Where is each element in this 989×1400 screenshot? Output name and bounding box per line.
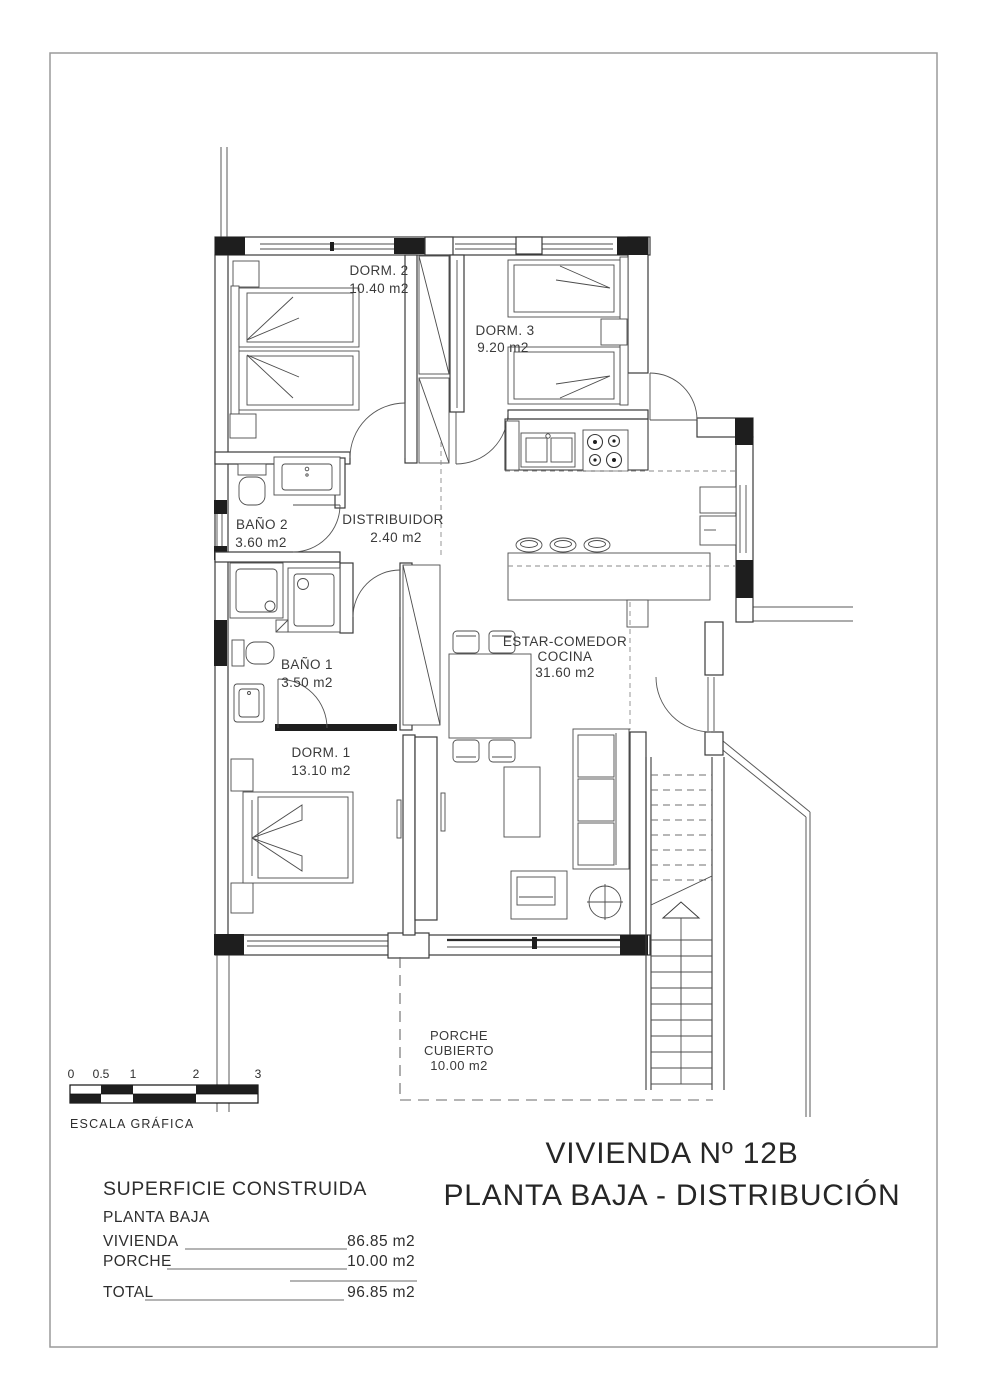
label-porche-line2: CUBIERTO <box>424 1043 494 1058</box>
label-dorm3-area: 9.20 m2 <box>477 340 529 355</box>
dining-set <box>449 631 531 762</box>
wardrobe-hall-lower <box>419 378 449 463</box>
bar-stools <box>516 538 610 552</box>
fridge-cabinets <box>700 487 736 545</box>
label-estar-line1: ESTAR-COMEDOR <box>503 634 627 649</box>
hob <box>583 430 628 471</box>
label-dorm1-area: 13.10 m2 <box>291 763 351 778</box>
dorm1-furniture <box>231 759 353 913</box>
armchair <box>511 871 567 919</box>
kitchen-sink <box>521 433 575 467</box>
door-dorm2 <box>350 403 405 458</box>
dorm2-furniture <box>230 261 359 438</box>
door-entry <box>656 677 714 732</box>
wardrobe-hall-upper <box>419 256 449 374</box>
summary-total-value: 96.85 m2 <box>347 1284 415 1301</box>
door-terrace <box>650 373 697 420</box>
door-dorm1 <box>353 570 400 617</box>
summary-row-vivienda-value: 86.85 m2 <box>347 1233 415 1250</box>
shower <box>230 563 283 618</box>
bathroom2-fixtures <box>238 457 340 505</box>
label-estar-line2: COCINA <box>538 649 593 664</box>
label-porche-area: 10.00 m2 <box>430 1058 487 1073</box>
door-dorm3 <box>456 412 508 464</box>
breakfast-bar <box>508 553 736 627</box>
scale-bar: 0 0.5 1 2 3 ESCALA GRÁFICA <box>68 1067 262 1131</box>
summary-total-label: TOTAL <box>103 1284 154 1301</box>
summary-row-porche-value: 10.00 m2 <box>347 1253 415 1270</box>
label-porche-line1: PORCHE <box>430 1028 488 1043</box>
toilet <box>232 640 274 666</box>
summary-heading: SUPERFICIE CONSTRUIDA <box>103 1178 367 1200</box>
summary-subheading: PLANTA BAJA <box>103 1209 210 1226</box>
label-bano1-area: 3.50 m2 <box>281 675 333 690</box>
scale-tick-3: 3 <box>255 1067 262 1081</box>
scale-tick-0: 0 <box>68 1067 75 1081</box>
label-dorm3-name: DORM. 3 <box>475 323 534 338</box>
wardrobe-dorm1 <box>403 565 440 725</box>
scale-tick-1: 1 <box>130 1067 137 1081</box>
drawing-sheet: DORM. 2 10.40 m2 DORM. 3 9.20 m2 BAÑO 2 … <box>0 0 989 1400</box>
label-estar-area: 31.60 m2 <box>535 665 595 680</box>
drain-box <box>276 620 288 632</box>
label-distribuidor-name: DISTRIBUIDOR <box>342 512 444 527</box>
living-furniture <box>504 729 629 920</box>
sink-vanity <box>274 457 340 495</box>
label-bano2-name: BAÑO 2 <box>236 517 288 532</box>
shower-2 <box>288 568 340 632</box>
bathroom1-fixtures <box>230 563 340 722</box>
title-line2: PLANTA BAJA - DISTRIBUCIÓN <box>443 1179 900 1212</box>
toilet <box>238 464 266 505</box>
stairs <box>646 757 724 1090</box>
surface-summary: SUPERFICIE CONSTRUIDA PLANTA BAJA VIVIEN… <box>103 1178 417 1301</box>
scale-tick-05: 0.5 <box>93 1067 110 1081</box>
door-bano2 <box>293 505 340 552</box>
washbasin <box>234 684 264 722</box>
scale-tick-2: 2 <box>193 1067 200 1081</box>
coffee-table <box>504 767 540 837</box>
drawing-title: VIVIENDA Nº 12B PLANTA BAJA - DISTRIBUCI… <box>443 1137 900 1212</box>
side-table <box>587 884 623 920</box>
label-bano2-area: 3.60 m2 <box>235 535 287 550</box>
summary-row-porche-label: PORCHE <box>103 1253 172 1270</box>
label-distribuidor-area: 2.40 m2 <box>370 530 422 545</box>
summary-row-vivienda-label: VIVIENDA <box>103 1233 179 1250</box>
kitchen <box>505 419 736 627</box>
label-dorm2-name: DORM. 2 <box>349 263 408 278</box>
label-dorm1-name: DORM. 1 <box>291 745 350 760</box>
label-dorm2-area: 10.40 m2 <box>349 281 409 296</box>
sofa <box>573 729 629 869</box>
label-bano1-name: BAÑO 1 <box>281 657 333 672</box>
title-line1: VIVIENDA Nº 12B <box>545 1137 798 1170</box>
scale-bar-caption: ESCALA GRÁFICA <box>70 1116 194 1131</box>
